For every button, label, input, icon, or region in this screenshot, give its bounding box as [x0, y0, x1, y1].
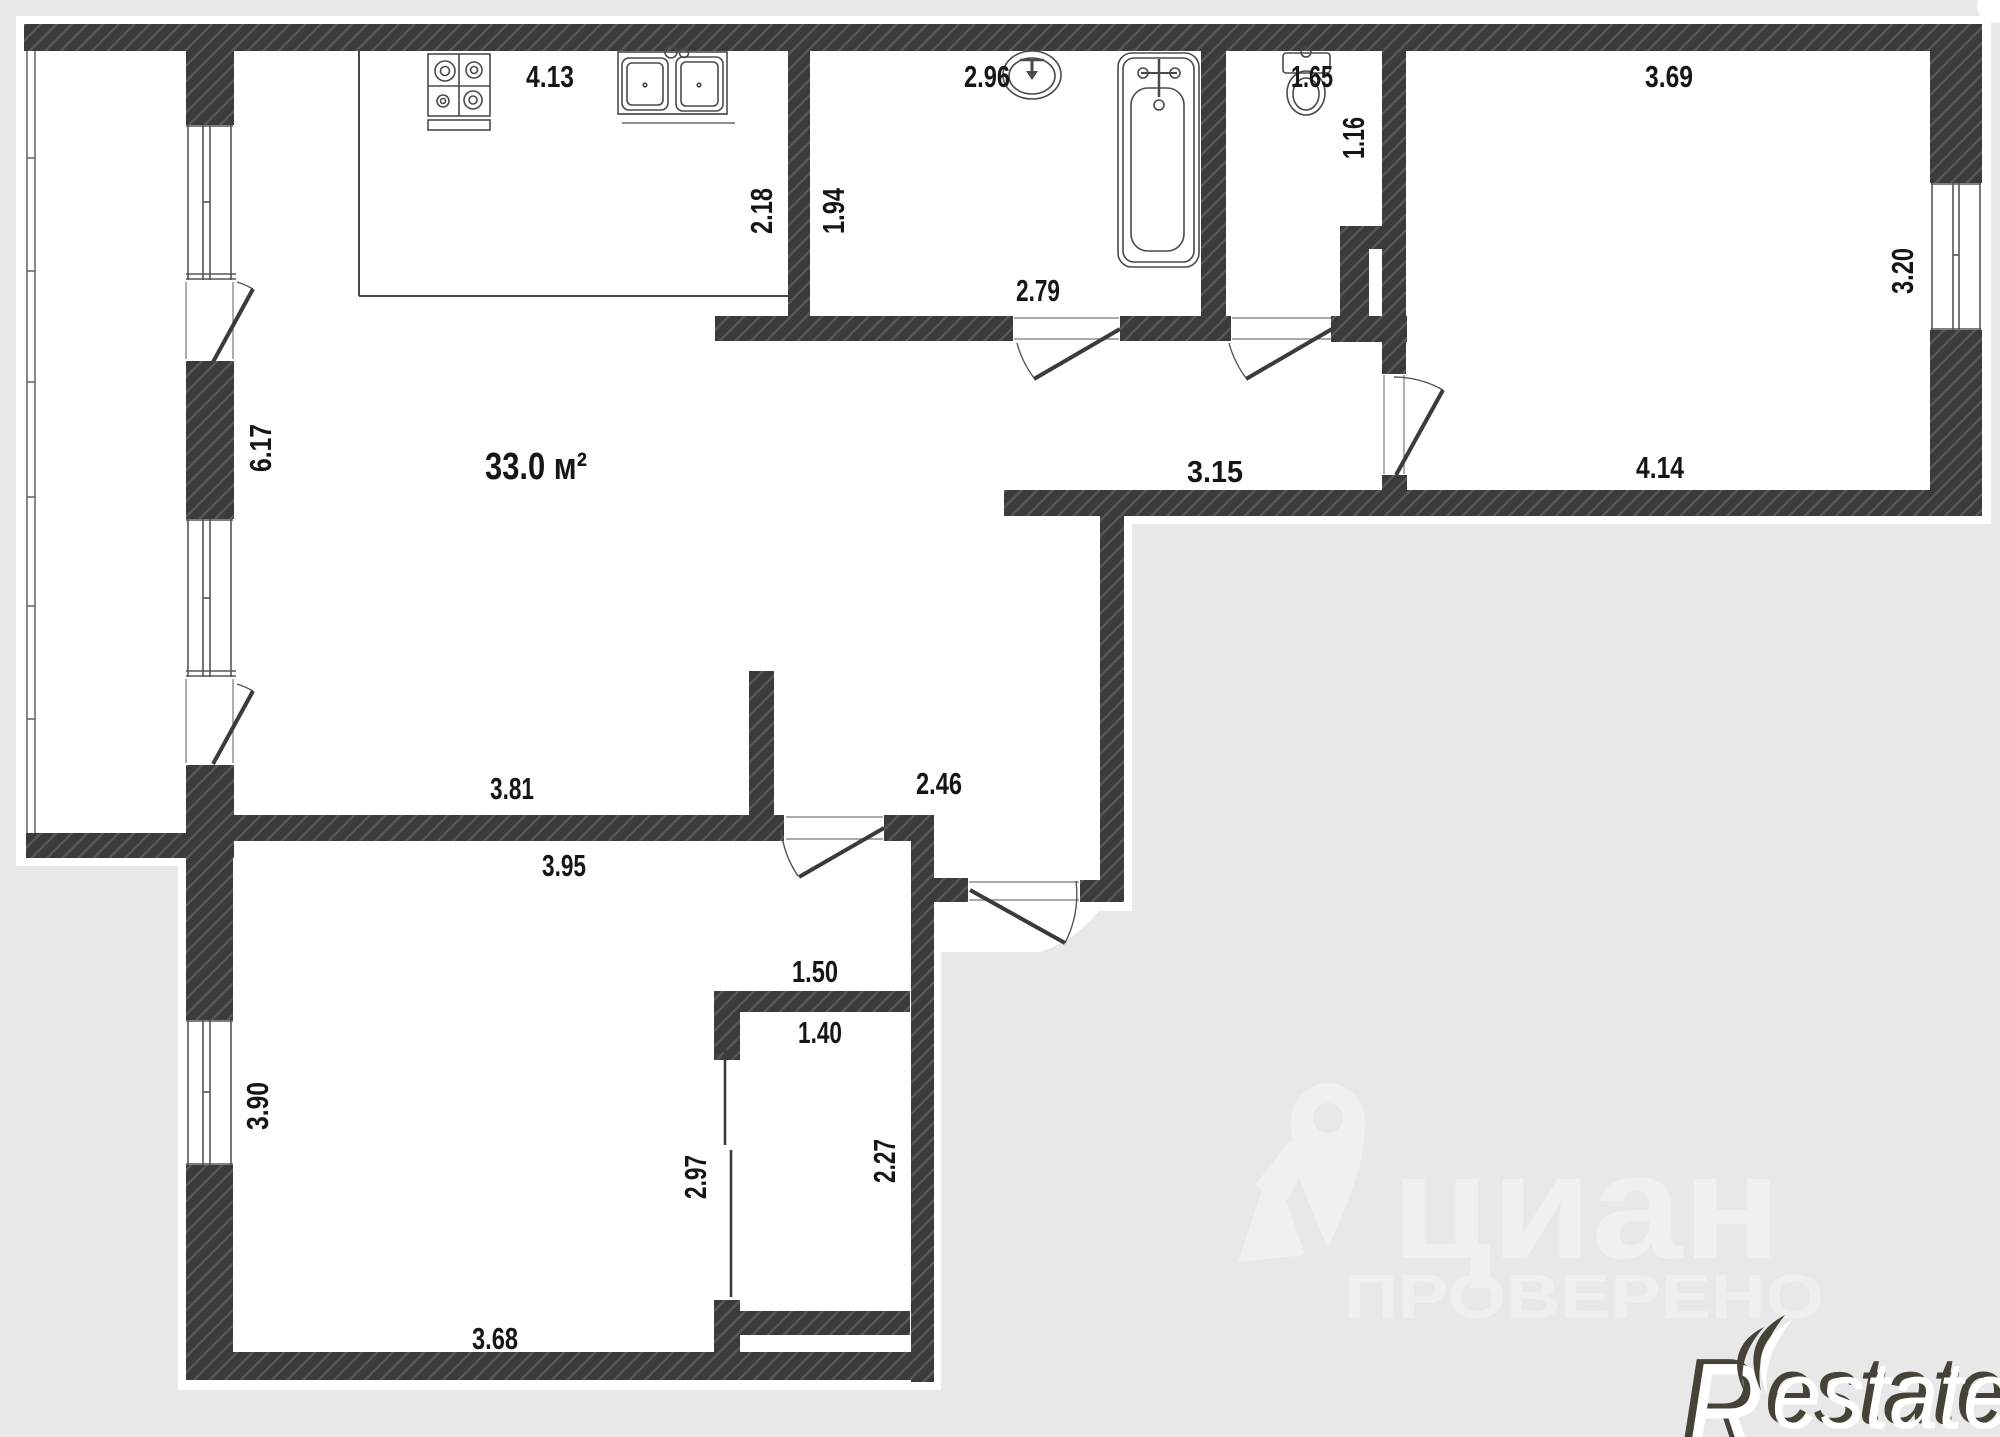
svg-text:2.96: 2.96 — [964, 59, 1010, 94]
svg-text:3.95: 3.95 — [542, 848, 586, 883]
svg-text:2.27: 2.27 — [867, 1139, 902, 1183]
svg-text:estate: estate — [1772, 1342, 2000, 1437]
svg-text:3.68: 3.68 — [472, 1321, 518, 1356]
svg-text:3.20: 3.20 — [1885, 248, 1920, 294]
svg-text:33.0 м²: 33.0 м² — [485, 446, 587, 488]
svg-text:4.13: 4.13 — [526, 59, 574, 94]
svg-text:1.65: 1.65 — [1291, 59, 1333, 94]
svg-text:4.14: 4.14 — [1636, 450, 1685, 485]
svg-text:3.90: 3.90 — [240, 1082, 275, 1130]
svg-text:2.46: 2.46 — [916, 766, 962, 801]
svg-text:ПРОВЕРЕНО: ПРОВЕРЕНО — [1344, 1263, 1824, 1332]
svg-text:2.18: 2.18 — [744, 188, 779, 234]
svg-text:2.79: 2.79 — [1016, 273, 1060, 308]
svg-text:3.81: 3.81 — [490, 771, 534, 806]
svg-text:1.16: 1.16 — [1336, 117, 1371, 159]
svg-text:3.69: 3.69 — [1645, 59, 1693, 94]
svg-text:2.97: 2.97 — [678, 1155, 713, 1199]
svg-text:6.17: 6.17 — [243, 424, 278, 472]
svg-text:1.94: 1.94 — [816, 187, 851, 234]
svg-text:1.50: 1.50 — [792, 954, 838, 989]
svg-text:R: R — [1686, 1335, 1764, 1437]
svg-text:1.40: 1.40 — [798, 1015, 842, 1050]
svg-text:3.15: 3.15 — [1187, 454, 1243, 489]
